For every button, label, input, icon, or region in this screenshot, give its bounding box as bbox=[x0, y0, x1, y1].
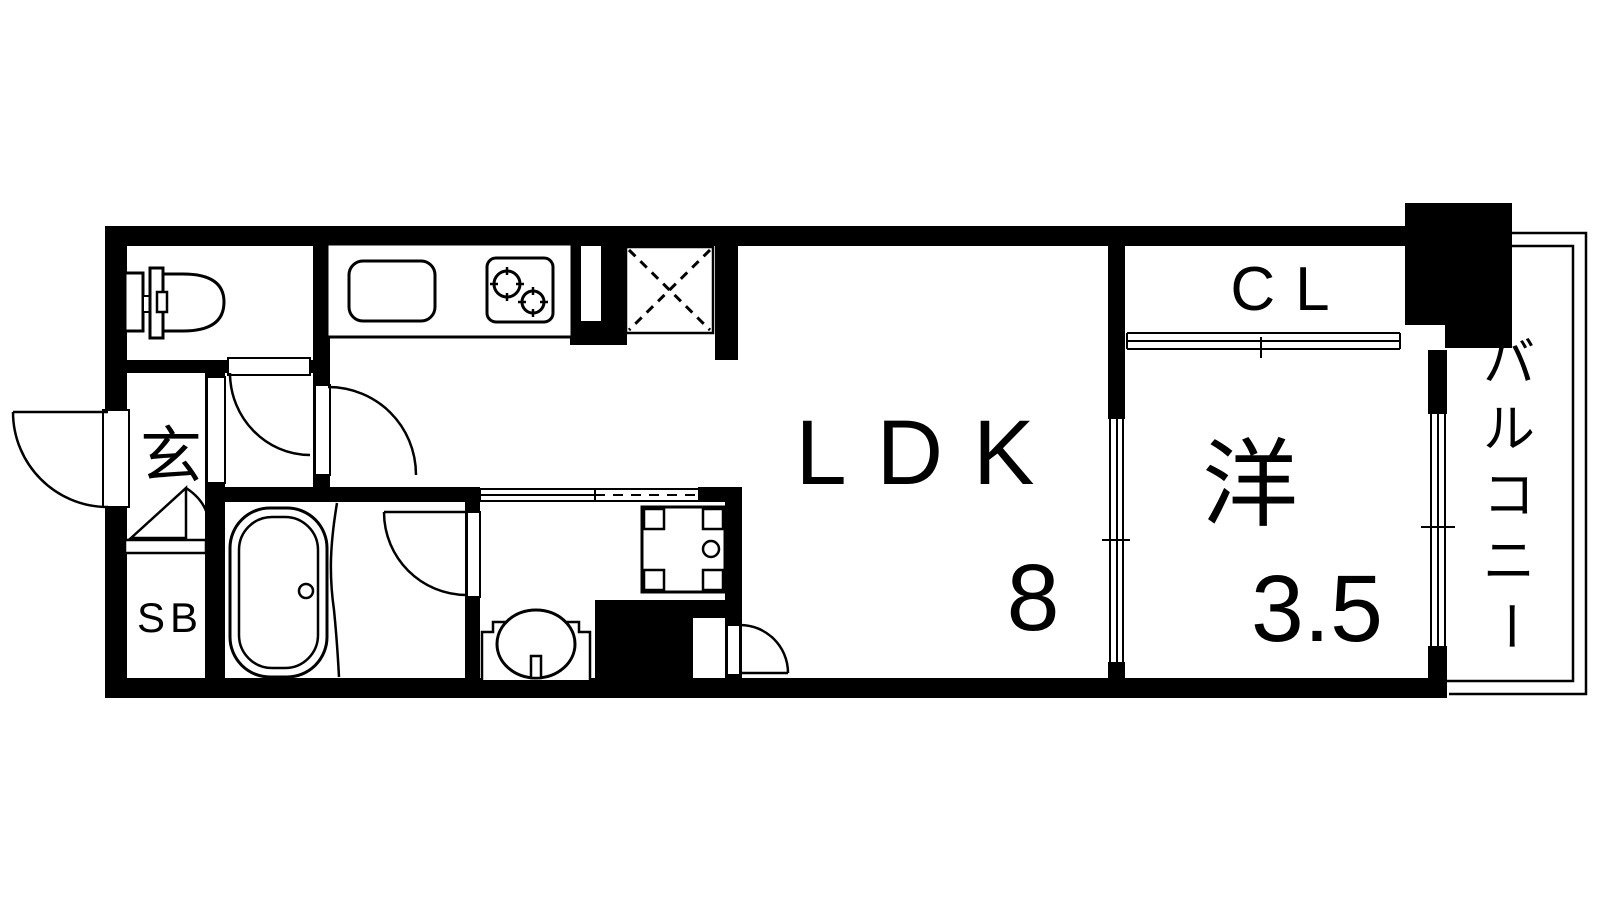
label-balcony-char-2: ル bbox=[1483, 401, 1535, 459]
label-ldk-size: 8 bbox=[1007, 545, 1060, 651]
entry-door-opening bbox=[103, 410, 129, 507]
wall-western-right-top bbox=[1428, 350, 1447, 413]
wall-washblock-top bbox=[205, 487, 480, 502]
wall-western-right-bottom bbox=[1428, 647, 1447, 697]
washroom-ldk-door-opening bbox=[727, 625, 740, 675]
toilet bbox=[125, 268, 224, 338]
washroom-changing-door-opening bbox=[467, 512, 480, 597]
entrance-hall-opening bbox=[207, 377, 225, 483]
wall-washroom-top-corner bbox=[698, 487, 742, 502]
toilet-seat-hinge bbox=[157, 292, 167, 312]
toilet-bowl bbox=[163, 274, 224, 331]
washbasin-faucet bbox=[531, 656, 541, 678]
shaft-door-recess bbox=[693, 618, 725, 678]
wall-bottom bbox=[105, 678, 1447, 698]
bathtub-drain bbox=[299, 584, 313, 598]
pillar-top-right bbox=[1405, 203, 1512, 325]
wall-ldk-western bbox=[1108, 246, 1125, 418]
pan-foot-br bbox=[703, 570, 723, 590]
label-closet: CL bbox=[1230, 255, 1349, 324]
pan-foot-tr bbox=[703, 509, 723, 529]
entrance-threshold bbox=[125, 540, 206, 553]
washing-machine-pan bbox=[642, 507, 725, 592]
kitchen bbox=[327, 244, 572, 337]
label-entrance: 玄 bbox=[140, 422, 202, 491]
wall-fridge-right bbox=[715, 226, 738, 360]
wall-ldk-western-stub bbox=[1108, 663, 1125, 680]
toilet-door-opening bbox=[228, 358, 310, 375]
floor-plan: 玄 SB LDK 8 CL 洋 3.5 バ ル コ ニ ー bbox=[0, 0, 1600, 900]
wall-top bbox=[105, 226, 1405, 246]
bathroom-fixtures bbox=[230, 503, 339, 677]
pan-drain bbox=[703, 541, 719, 557]
label-balcony-char-1: バ bbox=[1483, 335, 1535, 393]
pan-foot-bl bbox=[644, 570, 664, 590]
toilet-tank bbox=[125, 273, 143, 331]
pipe-space-slot bbox=[580, 245, 602, 322]
label-western-room: 洋 bbox=[1202, 432, 1298, 539]
label-shoe-box: SB bbox=[137, 594, 203, 641]
pan-foot-tl bbox=[644, 509, 664, 529]
refrigerator-space bbox=[626, 247, 713, 333]
label-western-room-size: 3.5 bbox=[1251, 556, 1383, 662]
label-balcony-char-5: ー bbox=[1480, 600, 1538, 652]
label-ldk: LDK bbox=[796, 402, 1065, 504]
label-balcony-char-4: ニ bbox=[1483, 533, 1535, 591]
kitchen-sink bbox=[349, 261, 435, 321]
label-balcony: バ ル コ ニ ー bbox=[1480, 335, 1538, 652]
hall-ldk-door-opening bbox=[315, 385, 330, 475]
label-balcony-char-3: コ bbox=[1483, 467, 1535, 525]
